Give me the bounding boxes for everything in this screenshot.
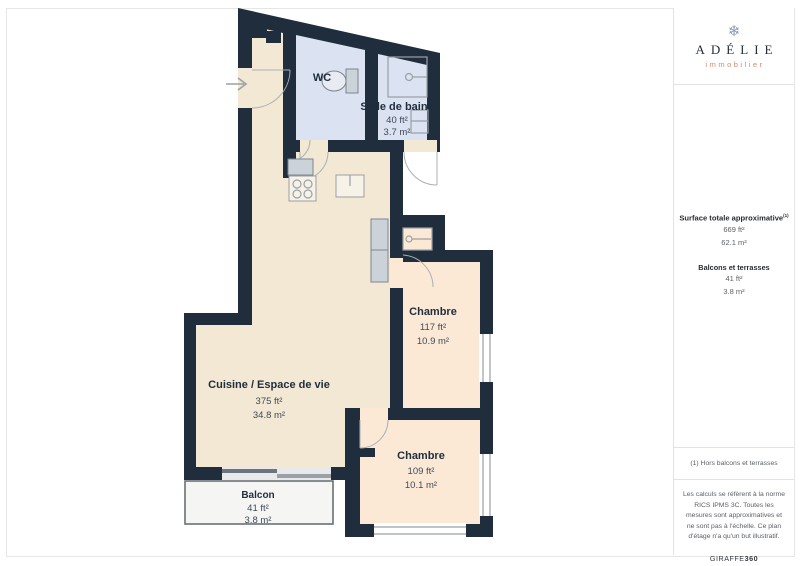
svg-text:10.9 m²: 10.9 m² xyxy=(417,336,449,347)
svg-text:41 ft²: 41 ft² xyxy=(247,503,269,514)
footnote: (1) Hors balcons et terrasses xyxy=(674,448,794,480)
kitchen-counter xyxy=(288,159,313,175)
svg-text:WC: WC xyxy=(313,72,331,84)
svg-text:Chambre: Chambre xyxy=(397,450,445,462)
info-sidebar: ❄ ADÉLIE immobilier Surface totale appro… xyxy=(673,8,794,555)
surface-total-ft: 669 ft² xyxy=(674,223,794,236)
stove-icon xyxy=(289,176,316,201)
surface-total-m: 62.1 m² xyxy=(674,236,794,249)
svg-text:Salle de bains: Salle de bains xyxy=(360,101,433,113)
snowflake-icon: ❄ xyxy=(728,24,741,39)
room-bedroom1-floor xyxy=(400,262,480,408)
svg-text:109 ft²: 109 ft² xyxy=(408,466,435,477)
agency-logo: ❄ ADÉLIE immobilier xyxy=(674,8,794,85)
svg-text:375 ft²: 375 ft² xyxy=(256,396,283,407)
svg-text:10.1 m²: 10.1 m² xyxy=(405,480,437,491)
svg-text:3.8 m²: 3.8 m² xyxy=(245,515,272,526)
svg-text:117 ft²: 117 ft² xyxy=(420,322,446,333)
kitchen-sink-icon xyxy=(336,175,364,197)
agency-tagline: immobilier xyxy=(705,60,764,69)
svg-text:Balcon: Balcon xyxy=(241,490,274,501)
disclaimer-text: Les calculs se réfèrent à la norme RICS … xyxy=(682,490,786,543)
surface-summary: Surface totale approximative(1) 669 ft² … xyxy=(674,85,794,448)
svg-text:3.7 m²: 3.7 m² xyxy=(384,127,411,138)
svg-text:Chambre: Chambre xyxy=(409,306,457,318)
giraffe360-credit: GIRAFFE360 xyxy=(682,554,786,563)
surface-total-title: Surface totale approximative(1) xyxy=(674,213,794,223)
agency-name: ADÉLIE xyxy=(696,42,779,58)
svg-text:34.8 m²: 34.8 m² xyxy=(253,410,285,421)
wardrobe xyxy=(371,219,388,282)
svg-text:40 ft²: 40 ft² xyxy=(386,115,408,126)
room-label-wc: WC xyxy=(313,72,331,84)
footnote-marker: (1) xyxy=(783,213,789,218)
sliding-door xyxy=(222,467,331,480)
balcony-surface-title: Balcons et terrasses xyxy=(674,263,794,272)
disclaimer-section: Les calculs se réfèrent à la norme RICS … xyxy=(674,480,794,563)
balcony-surface-m: 3.8 m² xyxy=(674,285,794,298)
floorplan-page: WC Salle de bains 40 ft² 3.7 m² Chambre … xyxy=(0,0,800,566)
svg-text:Cuisine / Espace de vie: Cuisine / Espace de vie xyxy=(208,379,330,391)
balcony-surface-ft: 41 ft² xyxy=(674,272,794,285)
